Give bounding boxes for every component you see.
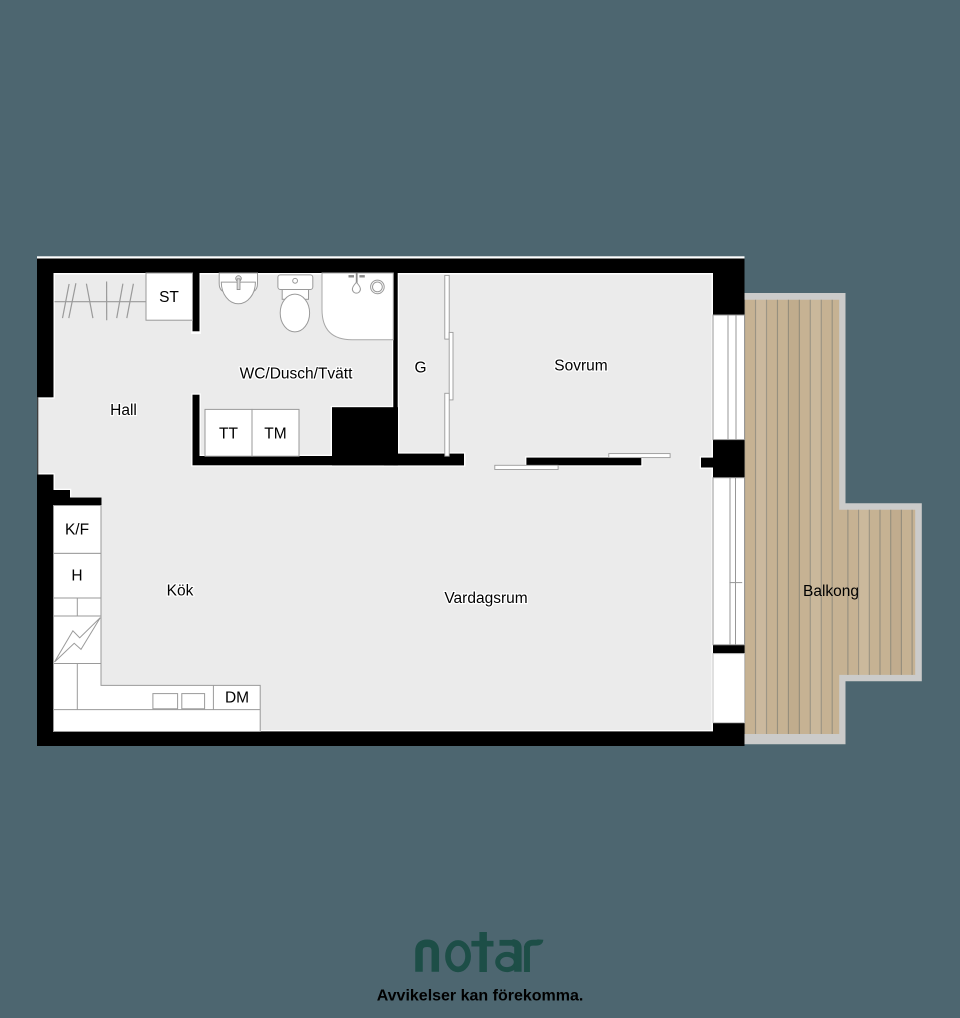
svg-text:H: H [71,568,82,585]
svg-text:TM: TM [264,426,286,443]
svg-text:Kök: Kök [167,583,194,600]
svg-text:WC/Dusch/Tvätt: WC/Dusch/Tvätt [240,366,354,383]
svg-text:Sovrum: Sovrum [554,358,607,375]
svg-text:TT: TT [219,426,238,443]
svg-text:ST: ST [159,289,179,306]
svg-text:K/F: K/F [65,522,89,539]
svg-text:Hall: Hall [110,402,137,419]
svg-text:G: G [414,360,426,377]
svg-text:DM: DM [225,690,249,707]
svg-text:Vardagsrum: Vardagsrum [444,590,527,607]
svg-text:Balkong: Balkong [803,583,859,600]
svg-text:Avvikelser kan förekomma.: Avvikelser kan förekomma. [377,988,584,1005]
